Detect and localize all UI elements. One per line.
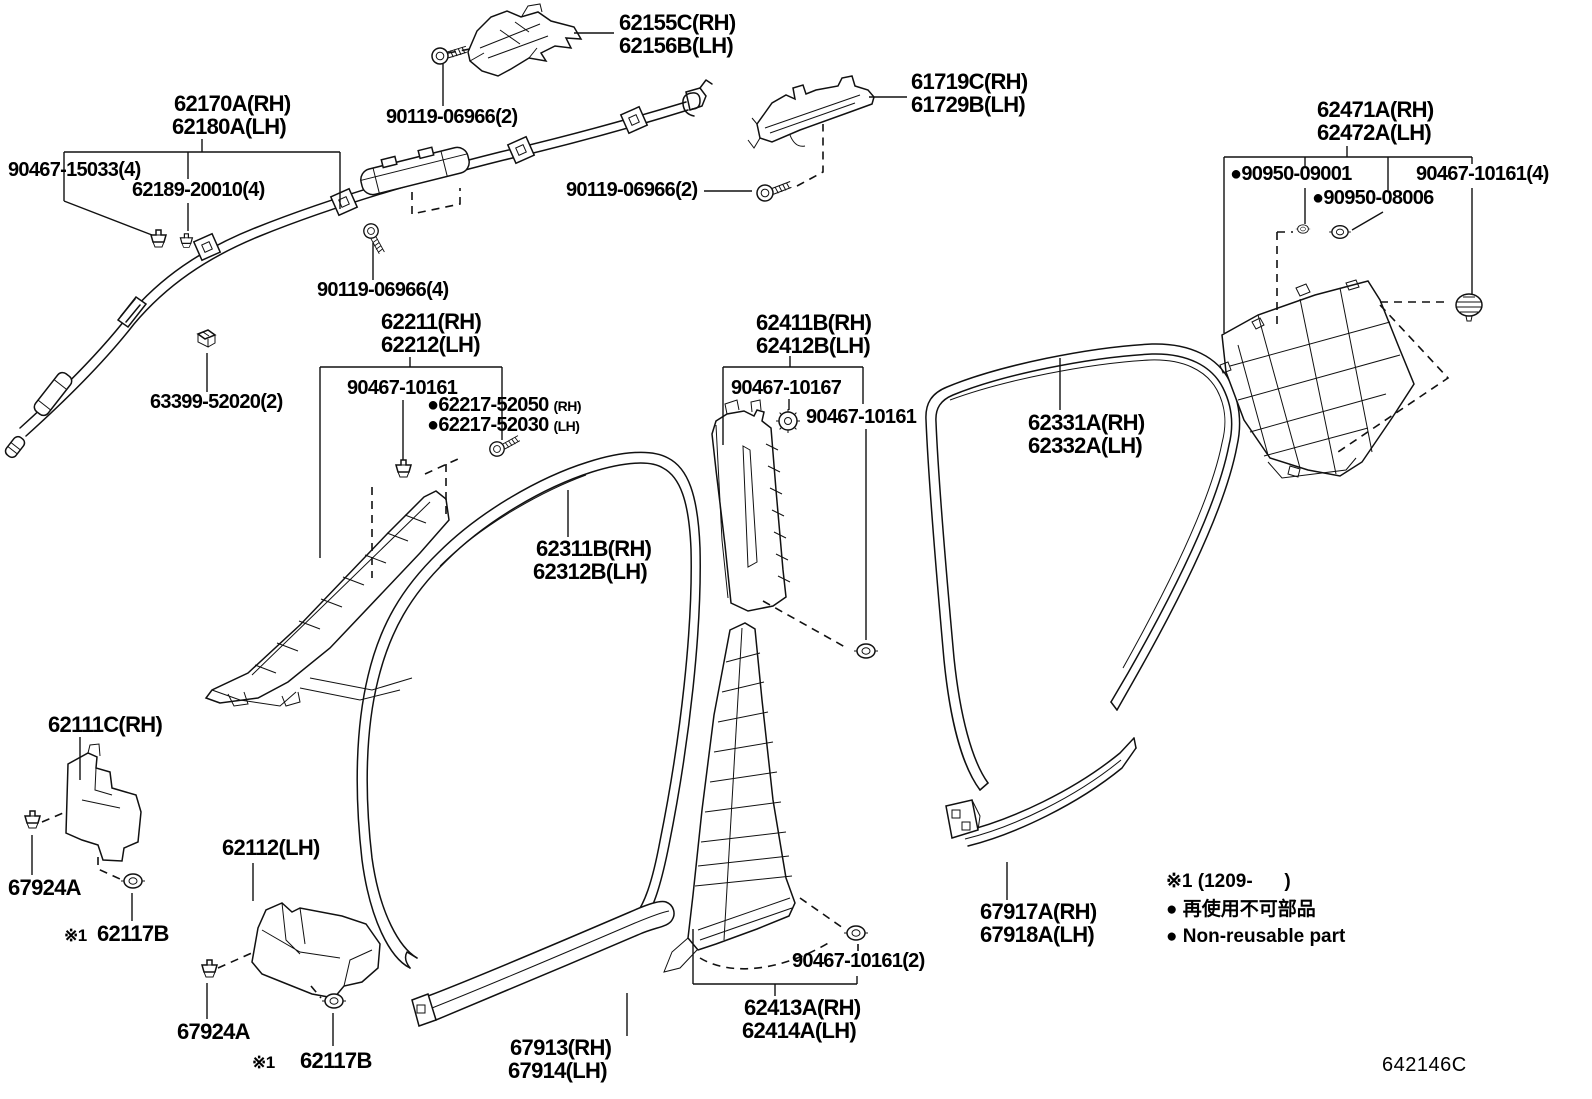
label-90467-10161-2: 90467-10161(2)	[792, 951, 925, 971]
front-scuff-plate-drawing	[412, 901, 674, 1026]
label-67914-lh: 67914(LH)	[508, 1060, 607, 1082]
clip-icon	[25, 811, 40, 828]
parts-diagram-pillar-garnish: 62155C(RH) 62156B(LH) 90119-06966(2) 617…	[0, 0, 1592, 1099]
label-90467-10161-4: 90467-10161(4)	[1416, 164, 1549, 184]
windshield-pillar-garnish-62211-drawing	[206, 459, 458, 706]
label-62180a-lh: 62180A(LH)	[172, 116, 286, 138]
clip-icon	[396, 460, 411, 477]
label-61729b-lh: 61729B(LH)	[911, 94, 1025, 116]
label-62471a-rh: 62471A(RH)	[1317, 99, 1434, 121]
screw-icon	[362, 222, 386, 257]
legend-non-reusable-en: ● Non-reusable part	[1166, 927, 1345, 946]
label-62155c-rh: 62155C(RH)	[619, 12, 736, 34]
pin-clip-icon	[1296, 225, 1310, 233]
label-90950-09001: ●90950-09001	[1230, 164, 1352, 184]
trim-clip-icon	[1456, 294, 1482, 321]
retainer-screw-icon	[488, 434, 523, 458]
grommet-icon	[844, 926, 868, 940]
label-67924a-2: 67924A	[177, 1021, 250, 1043]
legend-note-range: ※1 (1209- )	[1166, 872, 1291, 891]
screw-icon	[756, 180, 794, 203]
quarter-pillar-garnish-drawing	[1220, 232, 1450, 478]
label-90119-06966-2a: 90119-06966(2)	[386, 107, 517, 127]
grommet-icon	[1329, 226, 1351, 239]
label-62217-52030: ●62217-52030 (LH)	[427, 415, 579, 435]
label-62111c-rh: 62111C(RH)	[48, 714, 162, 736]
label-63399-52020: 63399-52020(2)	[150, 392, 283, 412]
label-62411b-rh: 62411B(RH)	[756, 312, 871, 334]
flower-grommet-icon	[776, 409, 800, 433]
label-62211-rh: 62211(RH)	[381, 311, 481, 333]
label-62170a-rh: 62170A(RH)	[174, 93, 291, 115]
rear-scuff-plate-drawing	[946, 738, 1136, 846]
center-pillar-lower-garnish-drawing	[664, 601, 858, 972]
legend-non-reusable-jp: ● 再使用不可部品	[1166, 900, 1316, 919]
roof-side-bracket-61719-drawing	[748, 76, 874, 186]
label-62312b-lh: 62312B(LH)	[533, 561, 647, 583]
cowl-side-trim-rh-drawing	[42, 744, 141, 879]
label-62189-20010: 62189-20010(4)	[132, 180, 265, 200]
label-90950-08006: ●90950-08006	[1312, 188, 1434, 208]
label-62414a-lh: 62414A(LH)	[742, 1020, 856, 1042]
label-67917a-rh: 67917A(RH)	[980, 901, 1097, 923]
label-90119-06966-2b: 90119-06966(2)	[566, 180, 697, 200]
grommet-icon	[121, 874, 145, 888]
label-62472a-lh: 62472A(LH)	[1317, 122, 1431, 144]
label-90467-15033: 90467-15033(4)	[8, 160, 141, 180]
label-62217-52050: ●62217-52050 (RH)	[427, 395, 581, 415]
label-note-ref-1: ※1	[64, 927, 87, 944]
label-67924a-1: 67924A	[8, 877, 81, 899]
screw-icon	[431, 44, 468, 65]
label-62311b-rh: 62311B(RH)	[536, 538, 651, 560]
label-62217-52050-side: (RH)	[553, 398, 581, 414]
clip-icon	[180, 234, 192, 248]
label-62212-lh: 62212(LH)	[381, 334, 480, 356]
label-67918a-lh: 67918A(LH)	[980, 924, 1094, 946]
label-90467-10167: 90467-10167	[731, 378, 841, 398]
label-90467-10161-b: 90467-10161	[806, 407, 916, 427]
label-62413a-rh: 62413A(RH)	[744, 997, 861, 1019]
label-62117b-2: 62117B	[300, 1050, 372, 1072]
diagram-line-art	[0, 0, 1592, 1099]
label-62217-52030-side: (LH)	[553, 418, 579, 434]
drawing-number: 642146C	[1382, 1055, 1467, 1075]
label-62412b-lh: 62412B(LH)	[756, 335, 870, 357]
label-62156b-lh: 62156B(LH)	[619, 35, 733, 57]
clip-icon	[202, 960, 217, 977]
cowl-side-trim-lh-drawing	[218, 903, 380, 998]
label-note-ref-2: ※1	[252, 1054, 275, 1071]
label-62112-lh: 62112(LH)	[222, 837, 320, 859]
label-62332a-lh: 62332A(LH)	[1028, 435, 1142, 457]
label-62331a-rh: 62331A(RH)	[1028, 412, 1145, 434]
curtain-airbag-rail-drawing	[3, 80, 712, 459]
box-clip-icon	[198, 330, 215, 347]
roof-rail-bracket-62155-drawing	[448, 4, 581, 76]
label-90119-06966-4: 90119-06966(4)	[317, 280, 448, 300]
label-61719c-rh: 61719C(RH)	[911, 71, 1028, 93]
grommet-icon	[854, 644, 878, 658]
clip-icon	[151, 230, 166, 247]
label-62117b-1: 62117B	[97, 923, 169, 945]
label-67913-rh: 67913(RH)	[510, 1037, 611, 1059]
